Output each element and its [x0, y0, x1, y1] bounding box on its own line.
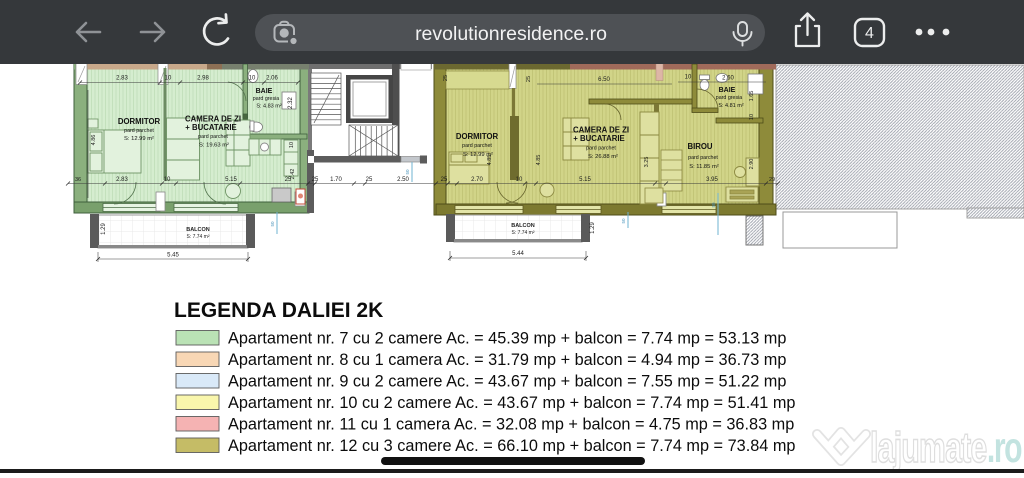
svg-text:25: 25	[366, 177, 373, 183]
svg-text:36: 36	[75, 177, 81, 183]
svg-text:BALCON: BALCON	[186, 227, 210, 233]
svg-text:BIROU: BIROU	[687, 142, 712, 151]
svg-text:2.32: 2.32	[288, 97, 294, 109]
svg-text:+ BUCATARIE: + BUCATARIE	[573, 134, 624, 143]
svg-text:10: 10	[249, 76, 256, 82]
svg-text:revolutionresidence.ro: revolutionresidence.ro	[415, 23, 607, 45]
svg-text:LEGENDA DALIEI 2K: LEGENDA DALIEI 2K	[174, 299, 383, 322]
svg-text:50: 50	[621, 218, 626, 224]
svg-text:10: 10	[749, 114, 755, 120]
svg-text:S: 19.63 m²: S: 19.63 m²	[199, 143, 229, 149]
svg-text:pard parchet: pard parchet	[124, 128, 154, 134]
svg-text:Apartament nr. 9 cu 2 camere A: Apartament nr. 9 cu 2 camere Ac. = 43.67…	[228, 373, 786, 391]
svg-text:2.70: 2.70	[471, 177, 483, 183]
svg-text:Apartament nr. 7 cu 2 camere A: Apartament nr. 7 cu 2 camere Ac. = 45.39…	[228, 330, 786, 348]
svg-text:DORMITOR: DORMITOR	[118, 117, 161, 126]
svg-text:pard gresia: pard gresia	[253, 96, 280, 102]
svg-text:25: 25	[441, 177, 448, 183]
svg-text:Apartament nr. 12 cu 3 camere: Apartament nr. 12 cu 3 camere Ac. = 66.1…	[228, 437, 795, 455]
svg-text:+ BUCATARIE: + BUCATARIE	[185, 123, 236, 132]
svg-text:10: 10	[289, 142, 295, 148]
svg-text:50: 50	[270, 221, 275, 227]
svg-text:10: 10	[164, 177, 171, 183]
svg-text:1.70: 1.70	[330, 177, 342, 183]
svg-text:25: 25	[443, 75, 449, 81]
svg-text:BAIE: BAIE	[256, 88, 273, 95]
svg-text:25: 25	[526, 76, 532, 82]
svg-text:pard gresia: pard gresia	[716, 95, 743, 101]
svg-text:Apartament nr. 10 cu 2 camere: Apartament nr. 10 cu 2 camere Ac. = 43.6…	[228, 394, 795, 412]
svg-text:1.65: 1.65	[749, 91, 755, 102]
svg-text:pard parchet: pard parchet	[688, 155, 718, 161]
svg-text:10: 10	[685, 75, 692, 81]
svg-text:4: 4	[865, 25, 874, 42]
svg-text:5.45: 5.45	[167, 253, 179, 259]
svg-text:4.85: 4.85	[536, 155, 542, 166]
svg-text:2.50: 2.50	[397, 177, 409, 183]
svg-text:S: 7.74 m²: S: 7.74 m²	[186, 234, 209, 240]
svg-text:pard parchet: pard parchet	[586, 146, 616, 152]
svg-text:29: 29	[769, 177, 775, 183]
svg-text:2.90: 2.90	[749, 159, 755, 170]
svg-text:2.42: 2.42	[290, 169, 296, 180]
svg-text:6.50: 6.50	[598, 77, 610, 83]
svg-text:2.06: 2.06	[266, 76, 278, 82]
svg-text:S: 12.99 m²: S: 12.99 m²	[124, 136, 154, 142]
svg-text:S: 4.83 m²: S: 4.83 m²	[256, 104, 282, 110]
svg-text:5.15: 5.15	[579, 177, 591, 183]
svg-text:4.86: 4.86	[91, 135, 97, 146]
svg-text:S: 26.88 m²: S: 26.88 m²	[588, 154, 618, 160]
svg-text:10: 10	[165, 76, 172, 82]
svg-text:2.83: 2.83	[116, 177, 128, 183]
svg-text:pard parchet: pard parchet	[462, 143, 492, 149]
svg-text:pard parchet: pard parchet	[198, 134, 228, 140]
svg-text:lajumate: lajumate	[870, 423, 987, 472]
svg-text:S: 4.81 m²: S: 4.81 m²	[718, 103, 744, 109]
svg-text:5.15: 5.15	[225, 177, 237, 183]
svg-text:50: 50	[711, 202, 716, 208]
svg-text:Apartament nr. 8 cu 1 camera A: Apartament nr. 8 cu 1 camera Ac. = 31.79…	[228, 351, 786, 369]
svg-text:10: 10	[516, 177, 523, 183]
svg-text:S: 7.74 m²: S: 7.74 m²	[511, 230, 534, 236]
svg-text:Apartament nr. 11 cu 1 camera: Apartament nr. 11 cu 1 camera Ac. = 32.0…	[228, 416, 794, 434]
svg-text:DORMITOR: DORMITOR	[456, 132, 499, 141]
svg-text:BAIE: BAIE	[719, 87, 736, 94]
svg-text:.ro: .ro	[987, 423, 1022, 472]
svg-text:50: 50	[405, 169, 410, 175]
svg-text:BALCON: BALCON	[511, 223, 535, 229]
svg-text:5.44: 5.44	[512, 251, 524, 257]
svg-text:2.60: 2.60	[722, 76, 734, 82]
svg-text:1.29: 1.29	[101, 223, 107, 235]
svg-text:4.85: 4.85	[487, 155, 493, 166]
svg-text:25: 25	[312, 177, 319, 183]
svg-text:3.25: 3.25	[644, 157, 650, 168]
svg-text:3.95: 3.95	[706, 177, 718, 183]
svg-text:1.29: 1.29	[590, 222, 596, 234]
svg-text:2.98: 2.98	[197, 76, 209, 82]
svg-text:2.83: 2.83	[116, 76, 128, 82]
svg-text:S: 11.85 m²: S: 11.85 m²	[689, 164, 719, 170]
